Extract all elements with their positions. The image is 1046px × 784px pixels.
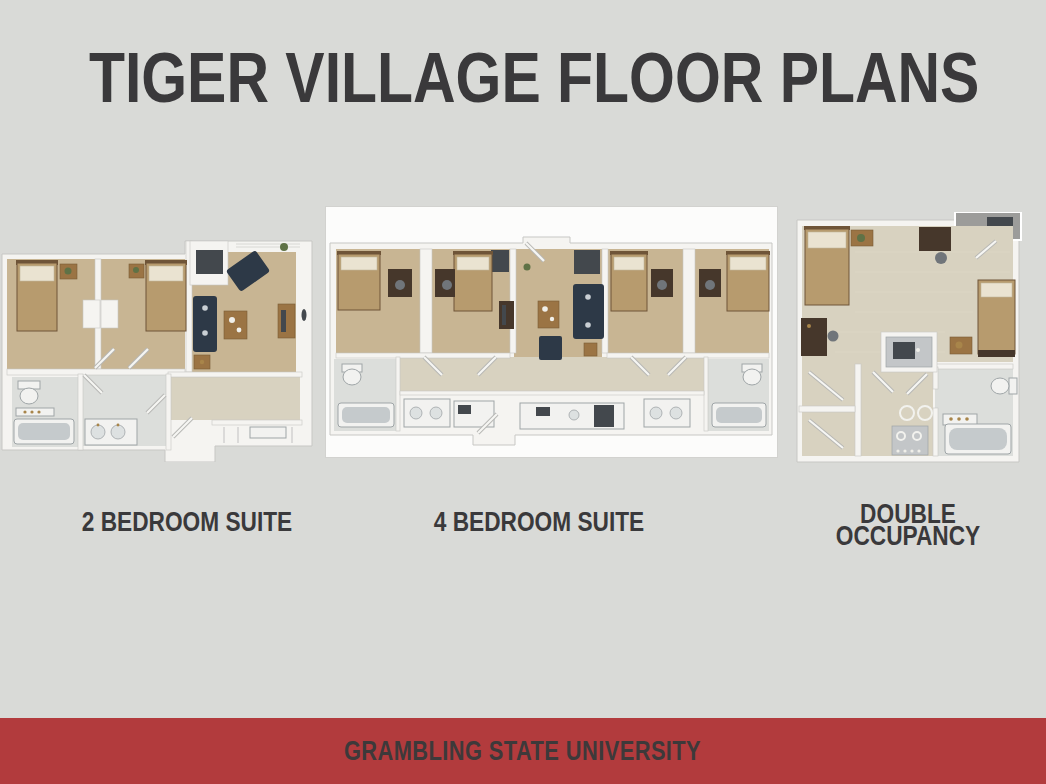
entry-nook xyxy=(190,241,228,285)
stove xyxy=(892,426,928,455)
kitchenette xyxy=(881,332,937,372)
floor-plan-4-bedroom-suite xyxy=(326,207,777,457)
vanity-right xyxy=(644,399,690,427)
footer-text: GRAMBLING STATE UNIVERSITY xyxy=(344,736,701,767)
floor-plan-2-bedroom-image xyxy=(0,238,315,462)
floor-plan-2-bedroom-suite xyxy=(0,238,315,462)
slide-canvas: TIGER VILLAGE FLOOR PLANS xyxy=(0,0,1046,784)
vanity xyxy=(85,419,137,445)
label-double-occupancy: DOUBLE OCCUPANCY xyxy=(824,503,992,547)
slide-title: TIGER VILLAGE FLOOR PLANS xyxy=(89,42,957,113)
kitchen xyxy=(520,403,624,429)
floor-plan-4-bedroom-image xyxy=(326,207,777,457)
floor-plan-double-occupancy xyxy=(795,212,1023,470)
floor-plan-double-occupancy-image xyxy=(795,212,1023,470)
vanity-left xyxy=(404,399,494,427)
label-2-bedroom-suite: 2 BEDROOM SUITE xyxy=(61,511,313,533)
footer-banner: GRAMBLING STATE UNIVERSITY xyxy=(0,718,1046,784)
label-4-bedroom-suite: 4 BEDROOM SUITE xyxy=(413,511,665,533)
